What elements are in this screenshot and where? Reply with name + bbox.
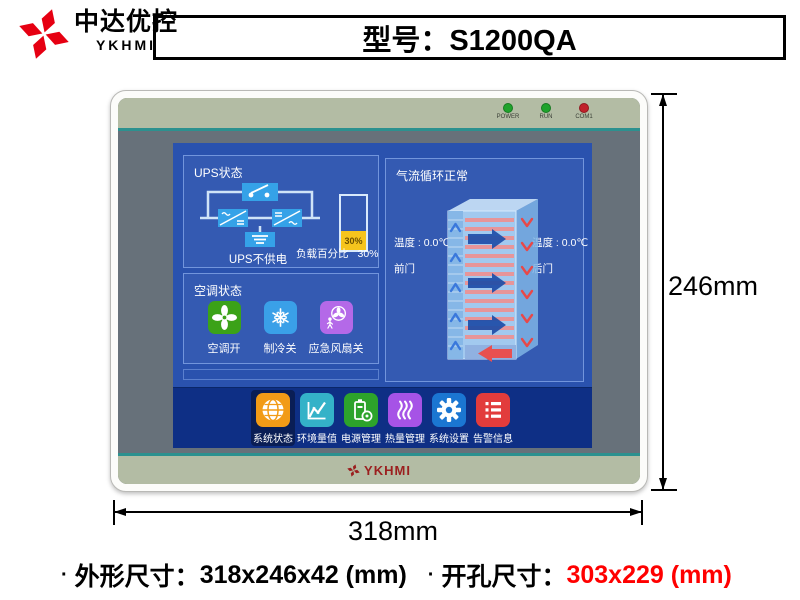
led-indicators: POWER RUN COM1 (492, 103, 600, 120)
led-power: POWER (492, 103, 524, 120)
ac-item-emergency-fan[interactable]: 应急风扇关 (308, 301, 364, 356)
brand-name-en: YKHMI (96, 38, 156, 52)
ac-status-panel: 空调状态 (183, 273, 379, 364)
ac-item-fan[interactable]: 空调开 (196, 301, 252, 356)
outline-size-label: 外形尺寸： (75, 557, 200, 593)
hmi-screen: UPS状态 (173, 143, 592, 448)
load-bar: 30% (339, 194, 368, 252)
ups-panel-title: UPS状态 (194, 164, 243, 181)
front-door-label: 前门 (394, 261, 415, 276)
battery-icon (344, 393, 378, 427)
spec-footer: · 外形尺寸： 318x246x42 (mm) · 开孔尺寸： 303x229 … (54, 557, 732, 593)
device-brand-text: YKHMI (364, 463, 411, 478)
bottom-content-strip (183, 369, 379, 380)
com1-led-icon (579, 103, 589, 113)
toolbar-system-settings[interactable]: 系统设置 (427, 390, 471, 446)
height-dimension-label: 246mm (668, 271, 758, 302)
airflow-panel: 气流循环正常 温度 : 0.0℃ 前门 温度 : 0.0℃ 后门 (385, 158, 584, 382)
led-run: RUN (530, 103, 562, 120)
ykhmi-pinwheel-icon (347, 464, 360, 477)
power-led-icon (503, 103, 513, 113)
ups-circuit-icon (194, 182, 326, 248)
device-bezel: UPS状态 (118, 131, 640, 453)
model-title-box: 型号：S1200QA (153, 15, 786, 60)
gear-icon (432, 393, 466, 427)
bullet-dot: · (428, 564, 435, 587)
width-dimension-label: 318mm (348, 516, 438, 547)
cutout-size-label: 开孔尺寸： (441, 557, 566, 593)
emergency-fan-icon[interactable] (320, 301, 353, 334)
toolbar-power-management[interactable]: 电源管理 (339, 390, 383, 446)
toolbar-heat-management[interactable]: 热量管理 (383, 390, 427, 446)
ups-status-panel: UPS状态 (183, 155, 379, 268)
globe-status-icon (256, 393, 290, 427)
toolbar-environment-values[interactable]: 环境量值 (295, 390, 339, 446)
device-top-strip: POWER RUN COM1 (118, 98, 640, 128)
snowflake-icon[interactable] (264, 301, 297, 334)
toolbar-system-status[interactable]: 系统状态 (251, 390, 295, 446)
fan-icon[interactable] (208, 301, 241, 334)
bullet-dot: · (61, 564, 68, 587)
led-com1: COM1 (568, 103, 600, 120)
cabinet-airflow-icon (438, 189, 548, 377)
hmi-device: POWER RUN COM1 UPS状态 (110, 90, 648, 492)
outline-size-value: 318x246x42 (mm) (200, 561, 407, 590)
toolbar-alarm-info[interactable]: 告警信息 (471, 390, 515, 446)
ac-item-cooling[interactable]: 制冷关 (252, 301, 308, 356)
cutout-size-value: 303x229 (mm) (566, 561, 731, 590)
chart-icon (300, 393, 334, 427)
device-bottom-strip: YKHMI (118, 456, 640, 484)
model-title: 型号：S1200QA (362, 17, 576, 59)
ac-panel-title: 空调状态 (194, 282, 242, 299)
screen-toolbar: 系统状态 环境量值 (173, 387, 592, 448)
heat-icon (388, 393, 422, 427)
numbered-list-icon (476, 393, 510, 427)
brand-pinwheel-icon (18, 8, 70, 60)
airflow-panel-title: 气流循环正常 (396, 167, 468, 184)
load-caption: 负载百分比30% (296, 246, 379, 261)
run-led-icon (541, 103, 551, 113)
